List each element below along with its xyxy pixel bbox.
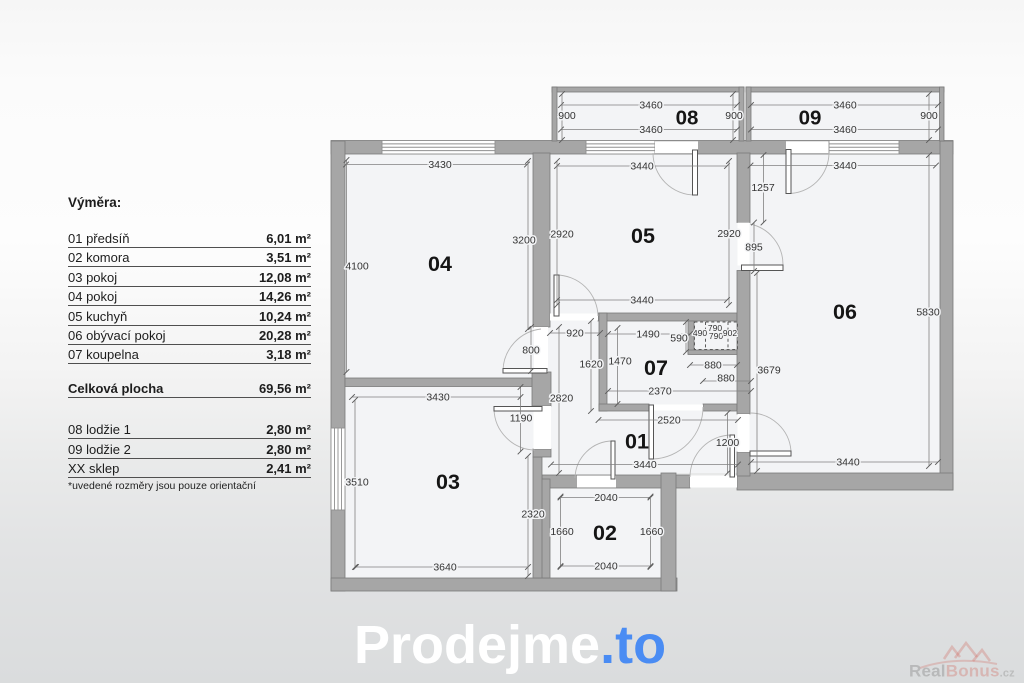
svg-text:3440: 3440 (630, 295, 654, 307)
svg-text:2920: 2920 (717, 228, 741, 240)
svg-text:3460: 3460 (639, 124, 663, 136)
svg-text:490: 490 (693, 328, 707, 338)
svg-text:800: 800 (522, 345, 540, 357)
svg-text:3640: 3640 (433, 562, 457, 574)
svg-text:2040: 2040 (594, 561, 618, 573)
svg-text:3440: 3440 (836, 457, 860, 469)
svg-text:900: 900 (725, 110, 743, 122)
svg-text:08: 08 (676, 107, 699, 130)
svg-text:02: 02 (593, 521, 617, 545)
svg-text:3460: 3460 (833, 124, 857, 136)
svg-text:3200: 3200 (512, 235, 536, 247)
svg-text:RealBonus.cz: RealBonus.cz (909, 662, 1015, 681)
svg-text:3460: 3460 (833, 100, 857, 112)
svg-text:3510: 3510 (345, 477, 369, 489)
svg-text:2040: 2040 (594, 492, 618, 504)
svg-text:2520: 2520 (657, 415, 681, 427)
svg-text:1490: 1490 (636, 329, 660, 341)
svg-text:1470: 1470 (608, 356, 632, 368)
svg-text:880: 880 (717, 373, 735, 385)
svg-text:5830: 5830 (916, 307, 940, 319)
svg-text:2820: 2820 (550, 393, 574, 405)
svg-text:06: 06 (833, 300, 857, 324)
svg-text:900: 900 (558, 110, 576, 122)
svg-text:2320: 2320 (521, 509, 545, 521)
svg-text:3440: 3440 (833, 160, 857, 172)
svg-text:04: 04 (428, 252, 452, 276)
svg-text:03: 03 (436, 470, 460, 494)
svg-text:880: 880 (704, 360, 722, 372)
svg-text:790: 790 (709, 331, 723, 341)
svg-text:3430: 3430 (428, 159, 452, 171)
svg-text:920: 920 (566, 328, 584, 340)
svg-text:1257: 1257 (751, 182, 775, 194)
svg-text:590: 590 (670, 333, 688, 345)
svg-text:2370: 2370 (648, 386, 672, 398)
svg-text:895: 895 (745, 242, 763, 254)
svg-text:1200: 1200 (716, 437, 740, 449)
svg-text:1620: 1620 (579, 359, 603, 371)
svg-text:2920: 2920 (550, 229, 574, 241)
svg-text:1190: 1190 (510, 413, 533, 425)
svg-text:01: 01 (625, 430, 649, 454)
svg-text:900: 900 (920, 110, 938, 122)
svg-text:3460: 3460 (639, 100, 663, 112)
svg-text:09: 09 (799, 107, 822, 130)
svg-text:3430: 3430 (426, 392, 450, 404)
svg-text:1660: 1660 (640, 526, 664, 538)
svg-text:05: 05 (631, 224, 655, 248)
svg-text:3440: 3440 (630, 161, 654, 173)
svg-text:4100: 4100 (345, 261, 369, 273)
svg-text:3440: 3440 (633, 459, 657, 471)
svg-text:902: 902 (723, 328, 737, 338)
svg-text:3679: 3679 (757, 365, 781, 377)
svg-text:1660: 1660 (550, 526, 574, 538)
svg-text:07: 07 (644, 356, 668, 380)
